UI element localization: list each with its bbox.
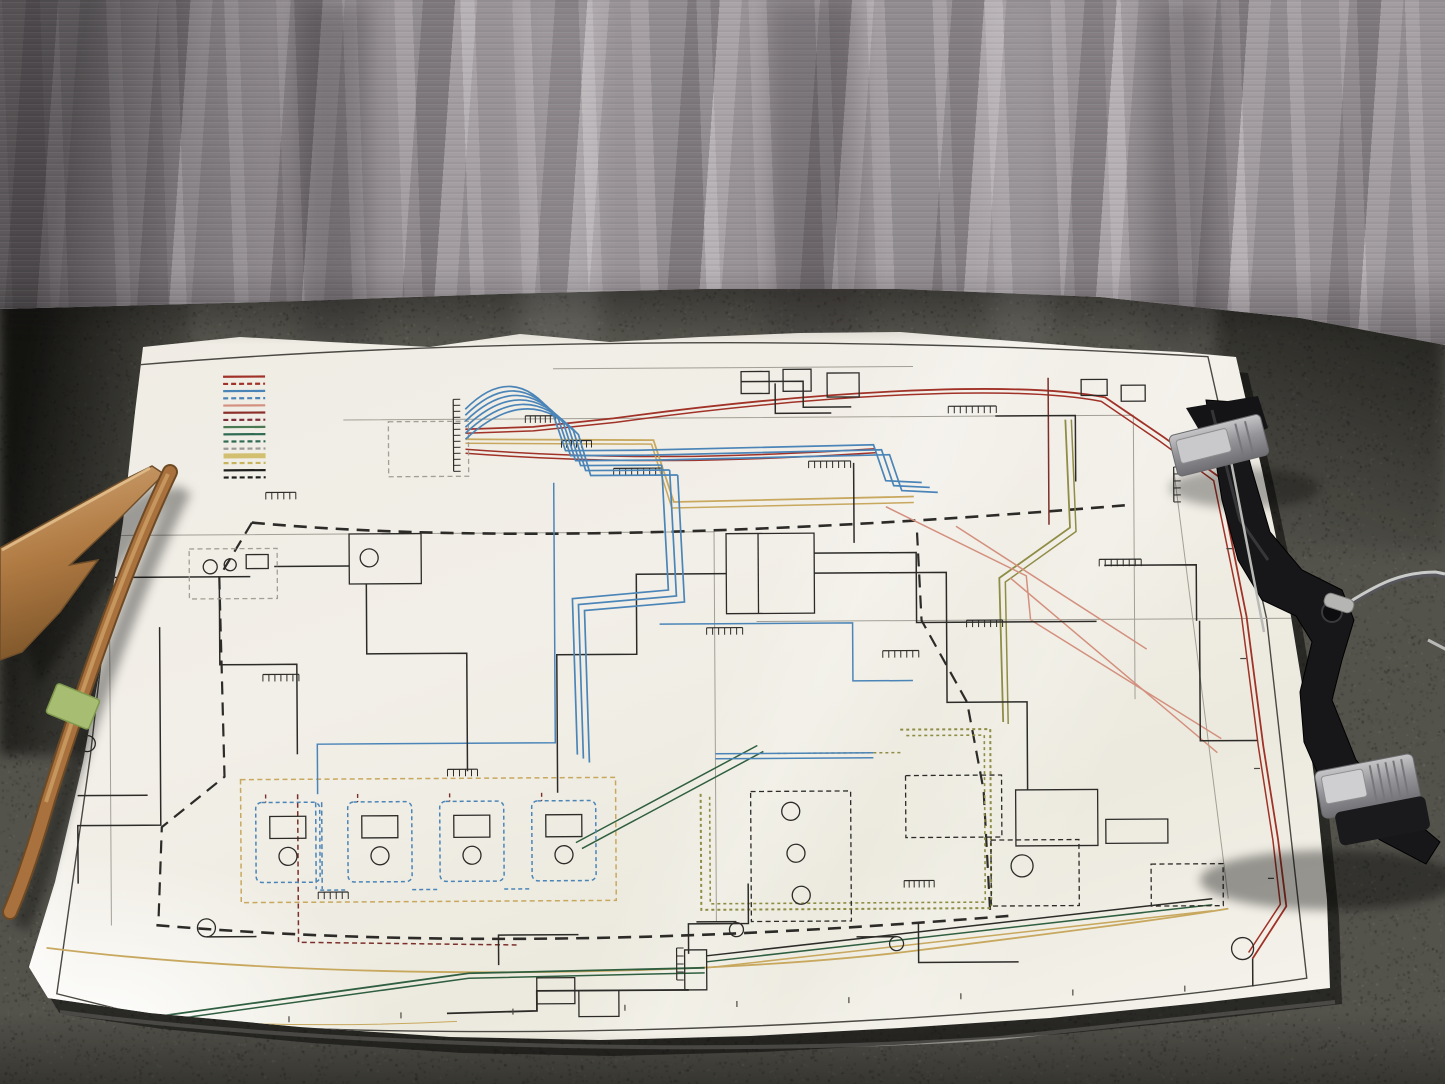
- schematic-frame: [43, 339, 1307, 1034]
- connector-pins: [261, 395, 1184, 983]
- schematic-drawing: [15, 322, 1345, 1062]
- lamp-modules: [256, 792, 597, 890]
- dashed-trunk-wires: [154, 505, 1129, 941]
- legend: [223, 374, 307, 478]
- schematic-wires: [75, 376, 1287, 1020]
- schematic-components: [77, 366, 1254, 1019]
- wiring-schematic-poster: [15, 322, 1345, 1062]
- photo-scene: [0, 0, 1445, 1084]
- border-ticks: [173, 438, 1274, 1026]
